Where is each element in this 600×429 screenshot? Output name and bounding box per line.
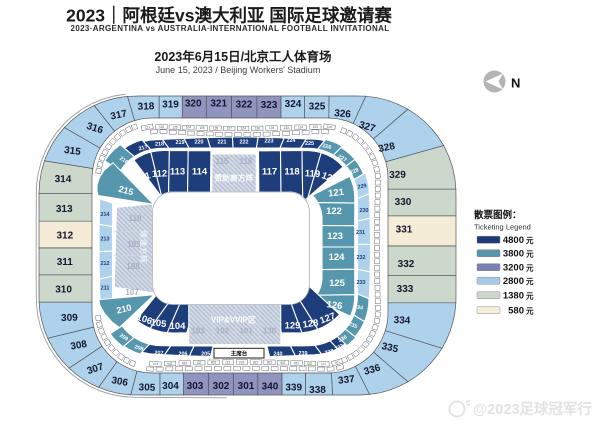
svg-text:104: 104 — [239, 360, 245, 364]
svg-text:110: 110 — [129, 214, 142, 223]
svg-text:107: 107 — [227, 127, 233, 131]
svg-text:114: 114 — [298, 125, 303, 129]
svg-text:116: 116 — [294, 361, 299, 365]
svg-text:元: 元 — [526, 307, 534, 316]
svg-text:3800: 3800 — [503, 249, 524, 260]
svg-text:230: 230 — [360, 208, 369, 214]
svg-text:305: 305 — [138, 382, 155, 394]
svg-text:110: 110 — [159, 125, 164, 129]
svg-text:211: 211 — [101, 286, 110, 292]
svg-text:129: 129 — [285, 321, 301, 332]
svg-text:340: 340 — [262, 382, 279, 393]
svg-text:101: 101 — [239, 327, 253, 336]
svg-text:239: 239 — [299, 351, 308, 357]
svg-text:元: 元 — [526, 264, 534, 273]
svg-text:323: 323 — [261, 100, 278, 111]
svg-text:137: 137 — [225, 360, 231, 364]
svg-text:126: 126 — [326, 299, 343, 312]
svg-text:113: 113 — [170, 167, 185, 178]
svg-text:138: 138 — [255, 126, 261, 130]
svg-text:580: 580 — [508, 306, 524, 317]
svg-text:103: 103 — [191, 327, 205, 336]
svg-text:元: 元 — [526, 277, 534, 286]
svg-text:225: 225 — [305, 141, 314, 147]
svg-text:散票图例：: 散票图例： — [474, 209, 522, 221]
svg-text:3200: 3200 — [503, 263, 524, 274]
svg-text:127: 127 — [320, 362, 326, 366]
svg-text:2023·ARGENTINA vs AUSTRALIA·IN: 2023·ARGENTINA vs AUSTRALIA·INTERNATIONA… — [71, 24, 390, 33]
svg-text:137: 137 — [152, 362, 158, 366]
svg-text:304: 304 — [162, 381, 179, 392]
svg-text:332: 332 — [398, 259, 415, 270]
svg-text:112: 112 — [152, 168, 168, 180]
svg-text:N: N — [511, 76, 520, 91]
svg-text:337: 337 — [337, 374, 355, 387]
svg-text:118: 118 — [284, 167, 299, 178]
svg-text:303: 303 — [187, 381, 204, 392]
svg-text:213: 213 — [101, 237, 110, 243]
svg-text:130: 130 — [263, 327, 277, 336]
svg-text:108: 108 — [211, 360, 217, 364]
svg-text:103: 103 — [313, 125, 319, 129]
svg-text:222: 222 — [240, 139, 249, 145]
svg-text:114: 114 — [192, 167, 208, 178]
svg-text:123: 123 — [327, 231, 343, 242]
svg-text:212: 212 — [101, 261, 110, 267]
svg-text:314: 314 — [55, 174, 72, 185]
svg-text:231: 231 — [356, 230, 365, 236]
svg-text:元: 元 — [526, 292, 534, 301]
svg-text:108: 108 — [126, 262, 140, 271]
svg-text:@2023足球冠军行: @2023足球冠军行 — [473, 400, 592, 418]
svg-text:214: 214 — [101, 212, 110, 218]
svg-text:206: 206 — [179, 352, 188, 358]
svg-text:320: 320 — [185, 99, 202, 110]
svg-text:218: 218 — [155, 141, 164, 147]
svg-text:224: 224 — [287, 138, 296, 144]
svg-text:319: 319 — [162, 100, 179, 111]
svg-text:元: 元 — [526, 250, 534, 259]
svg-text:125: 125 — [329, 278, 346, 289]
svg-text:321: 321 — [210, 99, 227, 110]
svg-text:313: 313 — [56, 204, 73, 215]
svg-text:312: 312 — [56, 230, 73, 241]
svg-text:116: 116 — [240, 157, 253, 166]
svg-text:122: 122 — [326, 206, 342, 217]
svg-text:104: 104 — [269, 126, 275, 130]
svg-text:104: 104 — [167, 361, 173, 365]
svg-text:117: 117 — [262, 167, 277, 178]
svg-text:330: 330 — [395, 197, 412, 208]
svg-text:207: 207 — [154, 350, 163, 356]
svg-text:333: 333 — [397, 284, 414, 295]
svg-text:107: 107 — [125, 288, 139, 297]
svg-text:球迷方阵: 球迷方阵 — [139, 230, 149, 263]
svg-text:326: 326 — [334, 108, 352, 120]
svg-text:128: 128 — [302, 318, 319, 331]
svg-text:232: 232 — [357, 255, 366, 261]
svg-text:105: 105 — [199, 126, 205, 130]
svg-text:赞助商方阵: 赞助商方阵 — [214, 173, 254, 183]
svg-text:233: 233 — [357, 280, 366, 286]
svg-text:主席台: 主席台 — [231, 349, 248, 357]
svg-text:元: 元 — [526, 236, 534, 245]
svg-text:311: 311 — [57, 257, 74, 268]
svg-text:4800: 4800 — [503, 235, 524, 246]
svg-text:301: 301 — [238, 381, 255, 392]
svg-text:124: 124 — [329, 252, 346, 263]
svg-text:309: 309 — [61, 313, 78, 324]
svg-text:205: 205 — [201, 352, 210, 358]
svg-text:105: 105 — [307, 361, 313, 365]
svg-text:302: 302 — [213, 381, 230, 392]
svg-text:221: 221 — [218, 140, 227, 146]
svg-text:324: 324 — [285, 99, 302, 110]
svg-text:219: 219 — [176, 140, 185, 146]
svg-text:2800: 2800 — [503, 276, 524, 287]
svg-text:220: 220 — [195, 140, 204, 146]
svg-text:136: 136 — [267, 360, 273, 364]
svg-text:Ticketing Legend: Ticketing Legend — [474, 223, 531, 232]
svg-text:322: 322 — [236, 100, 253, 111]
svg-text:104: 104 — [170, 321, 187, 332]
svg-text:339: 339 — [285, 383, 302, 394]
svg-text:2023年6月15日/北京工人体育场: 2023年6月15日/北京工人体育场 — [154, 49, 331, 64]
svg-text:126: 126 — [172, 125, 178, 129]
svg-text:310: 310 — [55, 285, 72, 296]
svg-text:223: 223 — [265, 138, 274, 144]
svg-text:135: 135 — [213, 126, 219, 130]
svg-text:128: 128 — [253, 360, 259, 364]
svg-text:VIP&VVIP区: VIP&VVIP区 — [211, 316, 256, 325]
svg-text:318: 318 — [138, 101, 155, 113]
svg-text:334: 334 — [393, 315, 410, 327]
svg-text:133: 133 — [283, 126, 289, 130]
svg-text:106: 106 — [280, 361, 286, 365]
svg-text:115: 115 — [196, 361, 201, 365]
svg-text:315: 315 — [63, 145, 81, 158]
svg-text:138: 138 — [182, 361, 188, 365]
svg-text:240: 240 — [274, 352, 283, 358]
svg-text:102: 102 — [216, 327, 230, 336]
svg-text:121: 121 — [328, 187, 346, 200]
svg-text:338: 338 — [309, 385, 326, 396]
svg-text:331: 331 — [396, 225, 413, 236]
svg-text:June 15, 2023 / Beijing Worker: June 15, 2023 / Beijing Workers' Stadium — [156, 65, 321, 75]
svg-text:1380: 1380 — [503, 291, 524, 302]
svg-text:104: 104 — [186, 126, 192, 130]
svg-text:124: 124 — [241, 127, 247, 131]
svg-text:119: 119 — [305, 168, 321, 180]
svg-text:2023｜阿根廷vs澳大利亚 国际足球邀请赛: 2023｜阿根廷vs澳大利亚 国际足球邀请赛 — [66, 6, 392, 26]
svg-text:115: 115 — [216, 157, 229, 166]
svg-text:106: 106 — [327, 125, 333, 130]
svg-text:325: 325 — [309, 102, 326, 113]
svg-text:329: 329 — [389, 170, 406, 181]
